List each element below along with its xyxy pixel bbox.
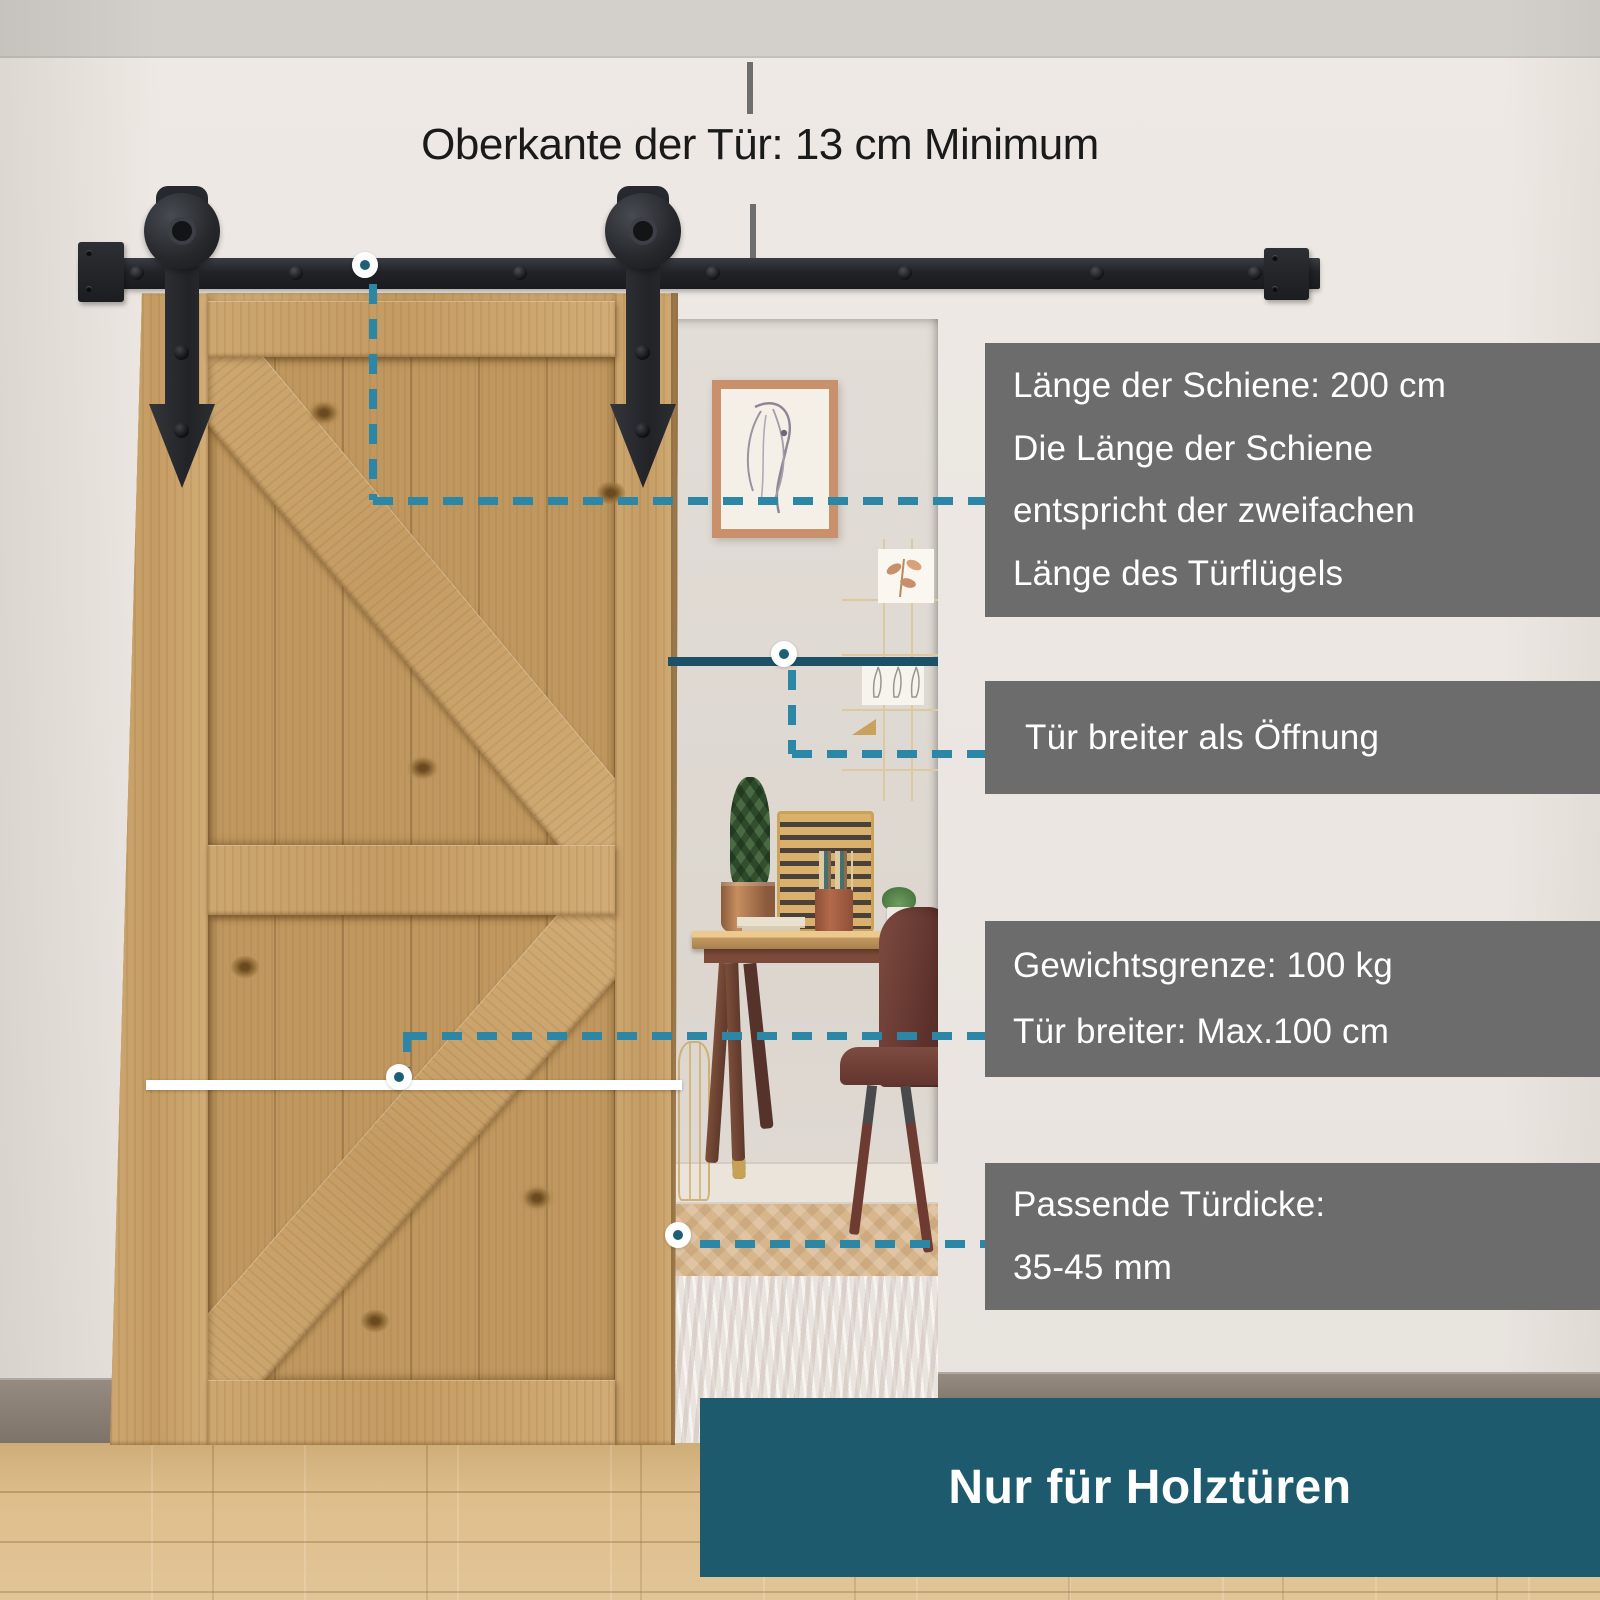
banner-label: Nur für Holztüren: [948, 1460, 1351, 1515]
rail-bolt: [1248, 266, 1262, 280]
rail-bolt: [289, 266, 303, 280]
rail-bolt: [1090, 266, 1104, 280]
callout-line: entspricht der zweifachen: [1013, 491, 1600, 531]
thickness-marker-dot: [665, 1222, 691, 1248]
pencil-cup: [815, 889, 853, 932]
weight-marker-dot: [386, 1064, 412, 1090]
callout-line: Tür breiter als Öffnung: [1025, 718, 1600, 758]
portrait-sketch: [721, 389, 829, 529]
desk-apron: [704, 949, 902, 963]
rail-bolt: [898, 266, 912, 280]
rail-length-marker-dot: [352, 252, 378, 278]
barn-door-infographic: Oberkante der Tür: 13 cm Minimum Länge d…: [0, 0, 1600, 1600]
interior-baseboard: [674, 1162, 938, 1204]
door-wider-marker-dot: [771, 641, 797, 667]
wood-knot: [360, 1309, 390, 1333]
picture-frame: [712, 380, 838, 538]
door-wider-leader-horizontal: [792, 750, 985, 758]
top-clearance-label: Oberkante der Tür: 13 cm Minimum: [280, 114, 1240, 176]
desk-leg: [743, 963, 773, 1129]
door-rail-bottom: [208, 1380, 615, 1445]
callout-line: Länge der Schiene: 200 cm: [1013, 366, 1600, 406]
callout-line: 35-45 mm: [1013, 1248, 1600, 1288]
door-hanger-right: [605, 183, 681, 583]
strap-bolt: [635, 423, 650, 438]
wood-knot: [306, 399, 342, 427]
rail-length-leader-horizontal: [373, 497, 985, 505]
door-hanger-left: [144, 183, 220, 583]
strap-bolt: [174, 423, 189, 438]
chair-seat: [840, 1047, 938, 1085]
callout-line: Die Länge der Schiene: [1013, 429, 1600, 469]
callout-door-thickness: Passende Türdicke: 35-45 mm: [985, 1163, 1600, 1310]
callout-line: Gewichtsgrenze: 100 kg: [1013, 946, 1600, 986]
callout-line: Länge des Türflügels: [1013, 554, 1600, 594]
ceiling-band: [0, 0, 1600, 58]
rail-end-stop-left: [78, 242, 124, 302]
pencils: [819, 851, 853, 891]
wheel-hub: [168, 217, 196, 245]
baseboard: [938, 1372, 1600, 1399]
callout-door-wider: Tür breiter als Öffnung: [985, 681, 1600, 794]
door-wider-leader-vertical: [788, 670, 796, 754]
callout-weight-limit: Gewichtsgrenze: 100 kg Tür breiter: Max.…: [985, 921, 1600, 1077]
thickness-leader-horizontal: [700, 1240, 985, 1248]
callout-line: Passende Türdicke:: [1013, 1185, 1600, 1225]
opening-width-line: [668, 657, 938, 666]
desk-leg: [725, 963, 746, 1179]
strap-bolt: [635, 345, 650, 360]
callout-rail-length: Länge der Schiene: 200 cm Die Länge der …: [985, 343, 1600, 617]
rail-bolt: [706, 266, 720, 280]
door-rail-middle: [208, 845, 615, 915]
door-rail-top: [208, 301, 615, 357]
rail-bolt: [513, 266, 527, 280]
wood-knot: [230, 955, 260, 979]
callout-line: Tür breiter: Max.100 cm: [1013, 1012, 1600, 1052]
book-stack: [737, 917, 805, 926]
banner-wood-doors-only: Nur für Holztüren: [700, 1398, 1600, 1577]
wheel-hub: [629, 217, 657, 245]
wire-basket: [678, 1041, 710, 1201]
rail-length-leader-vertical: [369, 284, 377, 500]
door-width-line: [146, 1080, 682, 1090]
braided-cactus: [730, 777, 770, 887]
rail-bolt: [130, 266, 144, 280]
dimension-tick-bottom: [750, 204, 756, 258]
wood-knot: [518, 1183, 556, 1213]
wire-grid-decor: [842, 539, 938, 801]
dimension-tick-top: [747, 62, 753, 114]
weight-leader-horizontal: [407, 1032, 985, 1040]
doorway-opening: [674, 319, 938, 1450]
strap-bolt: [174, 345, 189, 360]
wood-knot: [406, 755, 440, 781]
rail-end-stop-right: [1264, 248, 1309, 300]
sliding-rail: [80, 258, 1320, 289]
